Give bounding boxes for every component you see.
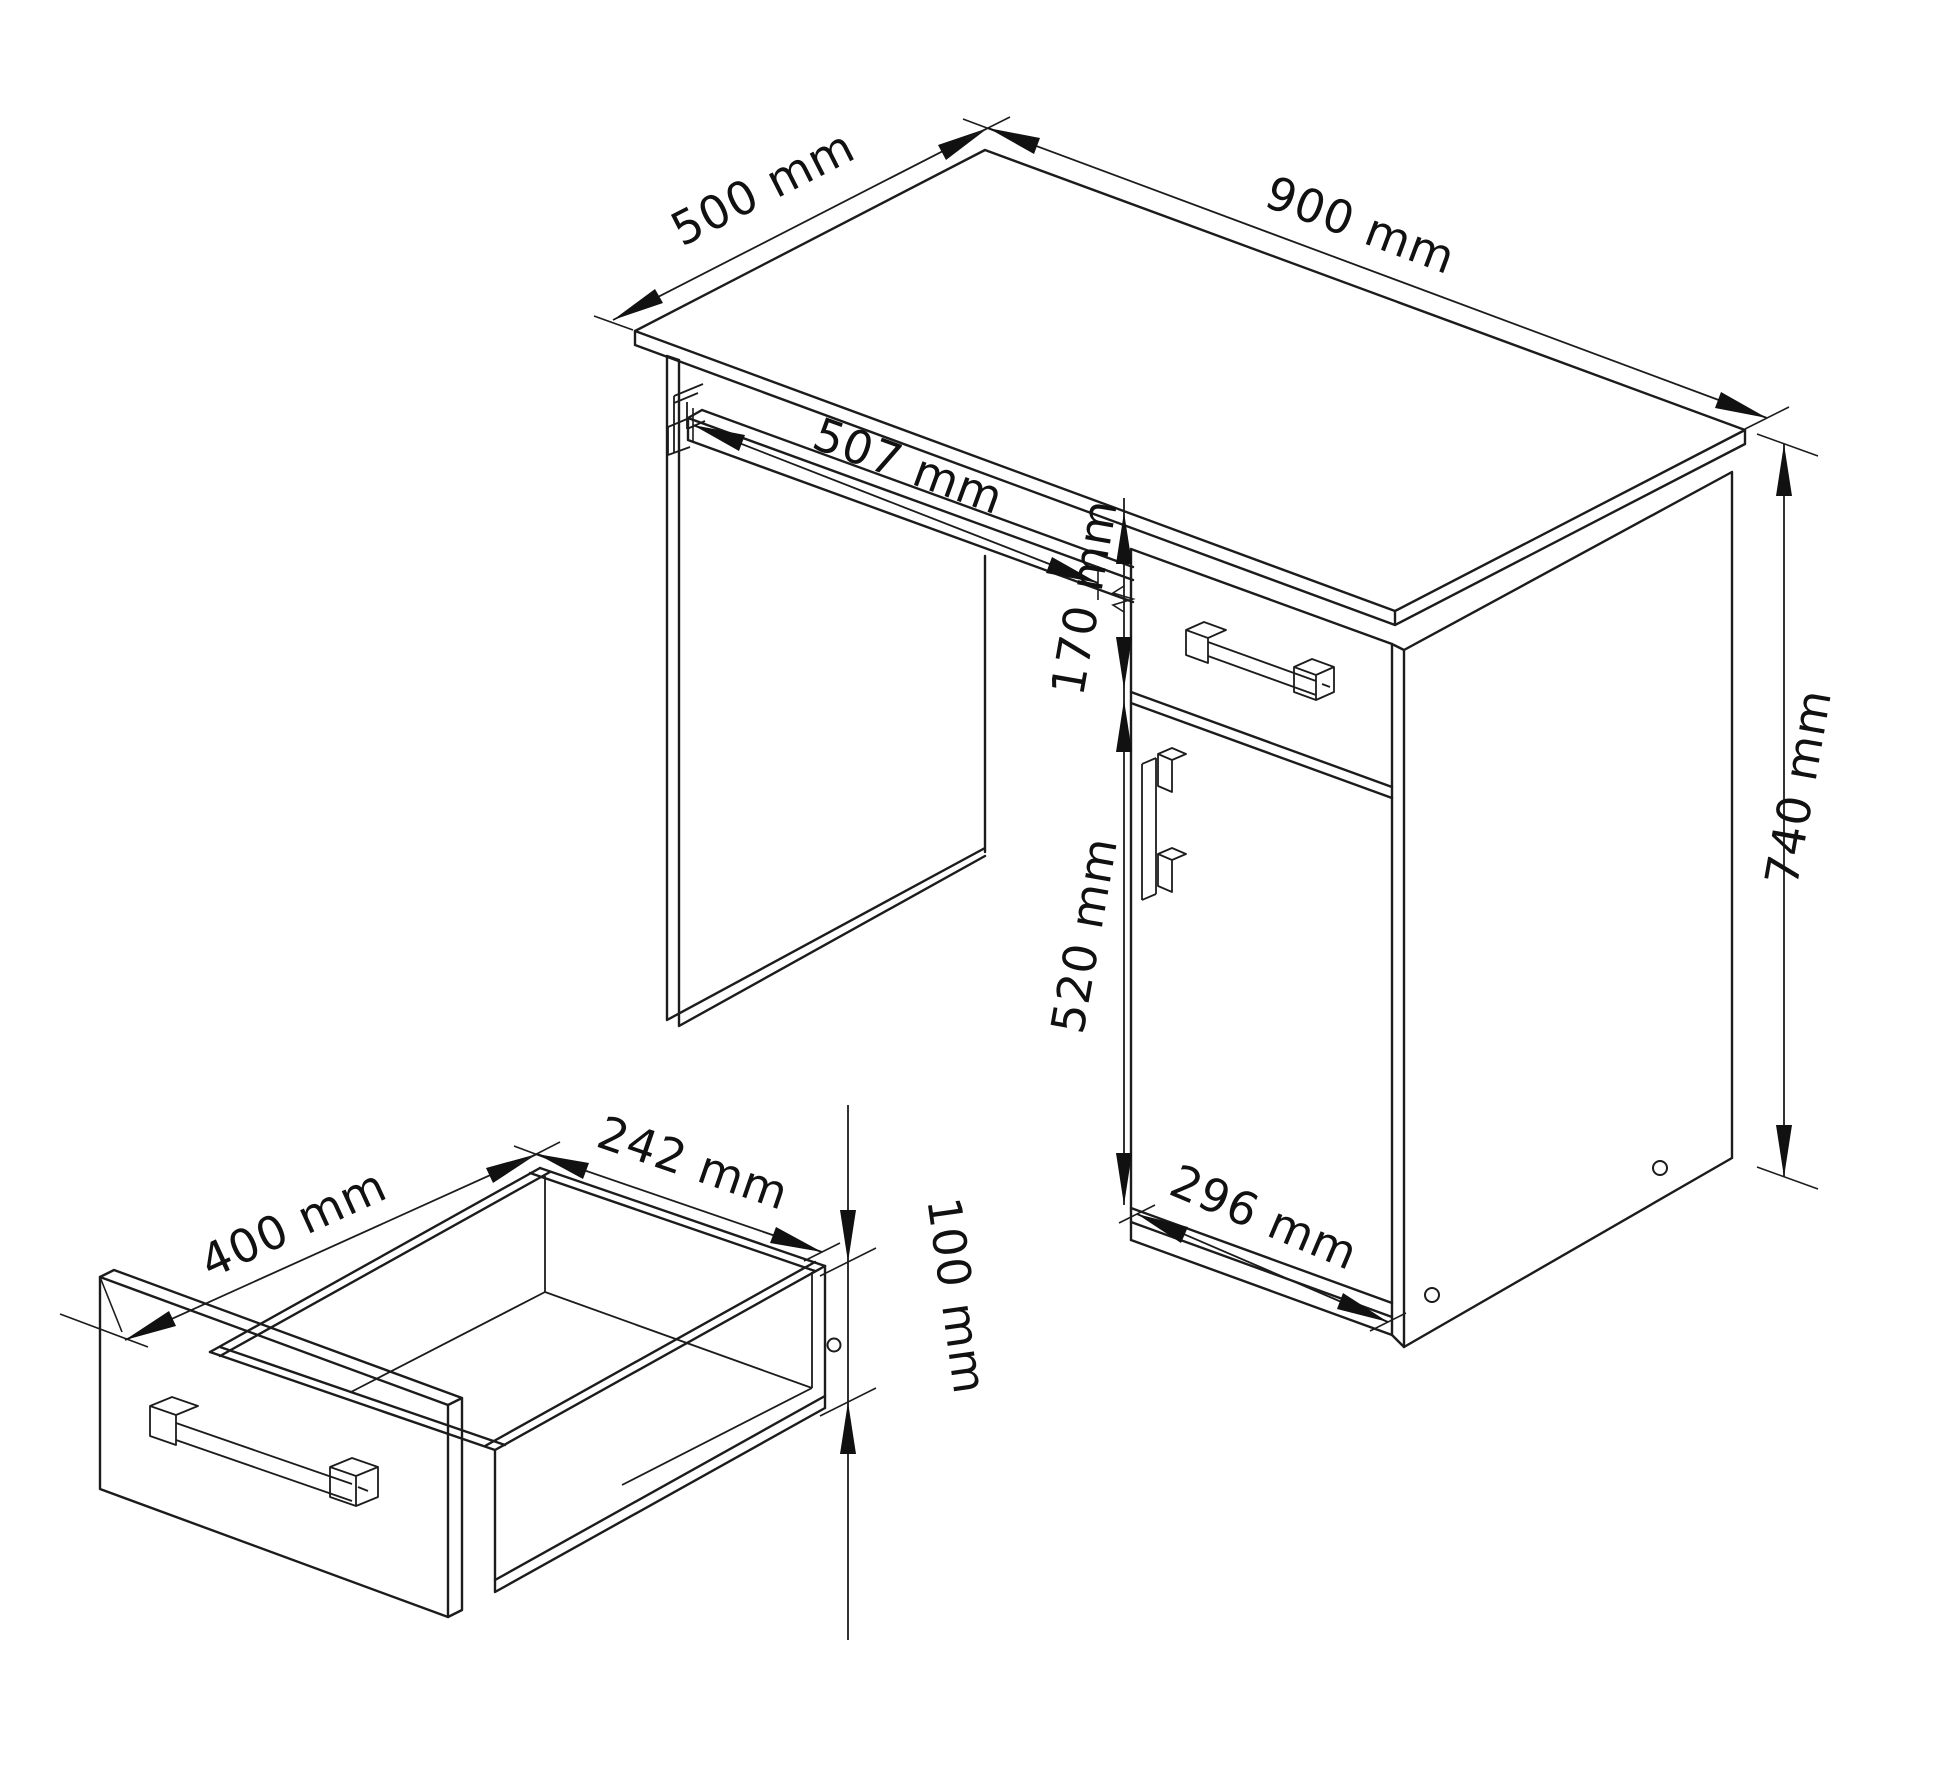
cabinet-door-handle: [1142, 748, 1186, 900]
dim-label-drawer-box-height: 100 mm: [916, 1194, 997, 1398]
dimension-door-height: 520 mm: [1040, 700, 1132, 1205]
screw-hole: [828, 1339, 841, 1352]
dimension-desk-depth: 500 mm: [594, 117, 1011, 330]
dimension-desk-height: 740 mm: [1754, 434, 1842, 1189]
screw-hole: [1425, 1288, 1439, 1302]
technical-drawing-page: 500 mm 900 mm 507 mm 170 mm 520 mm 740 m…: [0, 0, 1946, 1770]
dimension-drawer-depth: 400 mm: [60, 1142, 562, 1347]
drawer-detail-handle: [150, 1397, 378, 1506]
dim-label-tray-width: 507 mm: [806, 407, 1011, 525]
drawer-detail: 400 mm 242 mm 100 mm: [60, 1105, 997, 1640]
dim-label-door-height: 520 mm: [1040, 833, 1128, 1037]
dimension-desk-width: 900 mm: [988, 128, 1789, 429]
desk-top: [635, 150, 1745, 625]
dim-label-desk-height: 740 mm: [1754, 685, 1842, 889]
screw-hole: [1653, 1161, 1667, 1175]
dim-label-drawer-depth: 400 mm: [192, 1158, 395, 1289]
desk-diagram: 500 mm 900 mm 507 mm 170 mm 520 mm 740 m…: [0, 0, 1946, 1770]
drawer-door-gap: [1131, 692, 1392, 798]
cabinet-right-panel: [1404, 472, 1732, 1347]
cabinet-drawer-handle: [1186, 622, 1334, 700]
dimension-cabinet-width: 296 mm: [1119, 1154, 1406, 1331]
dim-label-drawer-front-height: 170 mm: [1040, 495, 1128, 699]
dimension-drawer-box-height: 100 mm: [820, 1105, 997, 1640]
dimension-tray-width: 507 mm: [693, 407, 1098, 600]
dim-label-desk-depth: 500 mm: [662, 119, 863, 257]
